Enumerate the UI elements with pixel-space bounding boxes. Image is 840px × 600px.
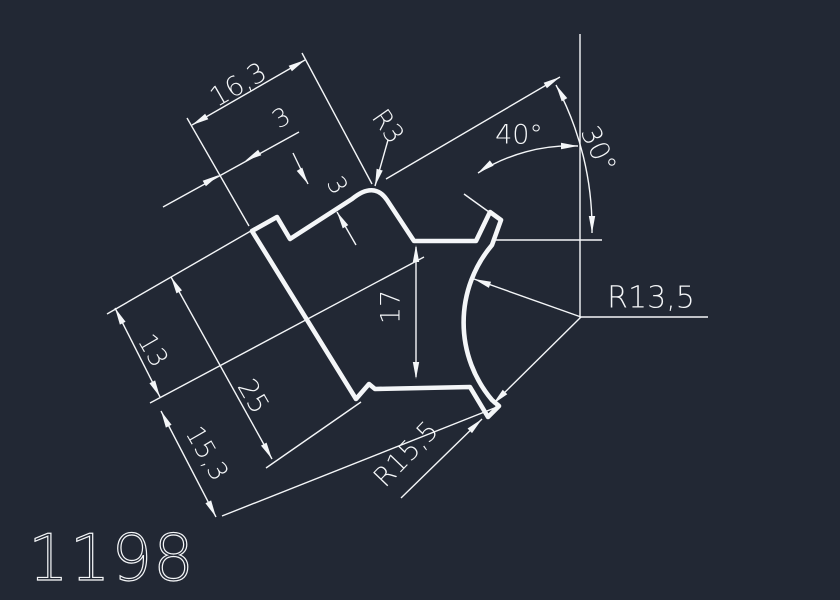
drawing-background [0,0,840,600]
part-number: 1198 [28,522,195,596]
cad-drawing: 16,333R340°30°R13,517132515,3R15,51198 [0,0,840,600]
dim-label-17: 17 [376,290,407,324]
dim-label-r13-5: R13,5 [607,281,695,316]
cad-viewport: 16,333R340°30°R13,517132515,3R15,51198 [0,0,840,600]
dim-label-40deg: 40° [495,120,543,151]
